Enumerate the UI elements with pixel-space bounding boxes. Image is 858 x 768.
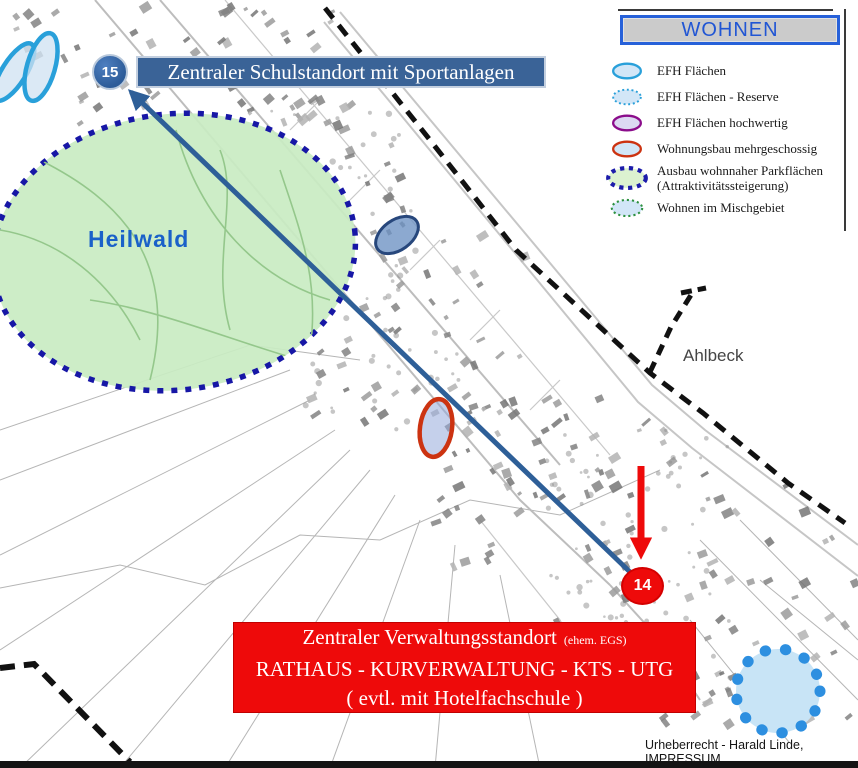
legend-swatch-icon: [603, 164, 651, 192]
legend-item-label: Ausbau wohnnaher Parkflächen (Attraktivi…: [651, 163, 823, 193]
legend-item: EFH Flächen: [603, 59, 843, 82]
verwaltung-banner-line2: RATHAUS - KURVERWALTUNG - KTS - UTG: [234, 655, 695, 684]
map-marker-15-number: 15: [102, 64, 119, 81]
legend-swatch-icon: [603, 113, 651, 133]
legend-swatch-icon: [603, 139, 651, 159]
legend-items: EFH Flächen EFH Flächen - Reserve EFH Fl…: [603, 59, 843, 222]
map-marker-14-number: 14: [634, 577, 652, 595]
school-site-banner: Zentraler Schulstandort mit Sportanlagen: [136, 56, 546, 88]
legend-item-label: Wohnen im Mischgebiet: [651, 200, 785, 215]
legend-frame-right: [844, 9, 846, 231]
legend-item: Wohnungsbau mehrgeschossig: [603, 137, 843, 160]
copyright-strip: Urheberrecht - Harald Linde, IMPRESSUM: [645, 742, 852, 761]
verwaltung-title-note: (ehem. EGS): [564, 633, 627, 647]
planning-map: Zentraler Schulstandort mit Sportanlagen…: [0, 0, 858, 768]
legend-item: EFH Flächen hochwertig: [603, 111, 843, 134]
legend-item-label: Wohnungsbau mehrgeschossig: [651, 141, 817, 156]
legend-swatch-icon: [603, 87, 651, 107]
verwaltung-banner-line1: Zentraler Verwaltungsstandort(ehem. EGS): [234, 623, 695, 655]
verwaltung-site-banner: Zentraler Verwaltungsstandort(ehem. EGS)…: [233, 622, 696, 713]
legend-item: EFH Flächen - Reserve: [603, 85, 843, 108]
legend-item: Wohnen im Mischgebiet: [603, 196, 843, 219]
efh-reserve-area-marker: [736, 649, 820, 733]
legend-title: WOHNEN: [620, 15, 840, 45]
ahlbeck-label: Ahlbeck: [683, 346, 743, 366]
legend-swatch-icon: [603, 61, 651, 81]
legend-swatch-icon: [603, 197, 651, 219]
map-marker-15: 15: [92, 54, 128, 90]
school-site-banner-text: Zentraler Schulstandort mit Sportanlagen: [168, 60, 515, 85]
verwaltung-banner-line3: ( evtl. mit Hotelfachschule ): [234, 684, 695, 713]
heilwald-label: Heilwald: [88, 226, 189, 253]
legend-item-label: EFH Flächen hochwertig: [651, 115, 788, 130]
legend-item: Ausbau wohnnaher Parkflächen (Attraktivi…: [603, 163, 843, 193]
legend-frame-top: [618, 9, 833, 11]
verwaltung-title: Zentraler Verwaltungsstandort: [302, 625, 556, 649]
legend-item-label: EFH Flächen - Reserve: [651, 89, 779, 104]
bottom-border-bar: [0, 761, 858, 768]
map-marker-14: 14: [621, 567, 664, 605]
legend-panel: WOHNEN EFH Flächen EFH Flächen - Reserve…: [585, 0, 858, 243]
legend-item-label: EFH Flächen: [651, 63, 726, 78]
legend-title-text: WOHNEN: [681, 19, 778, 42]
